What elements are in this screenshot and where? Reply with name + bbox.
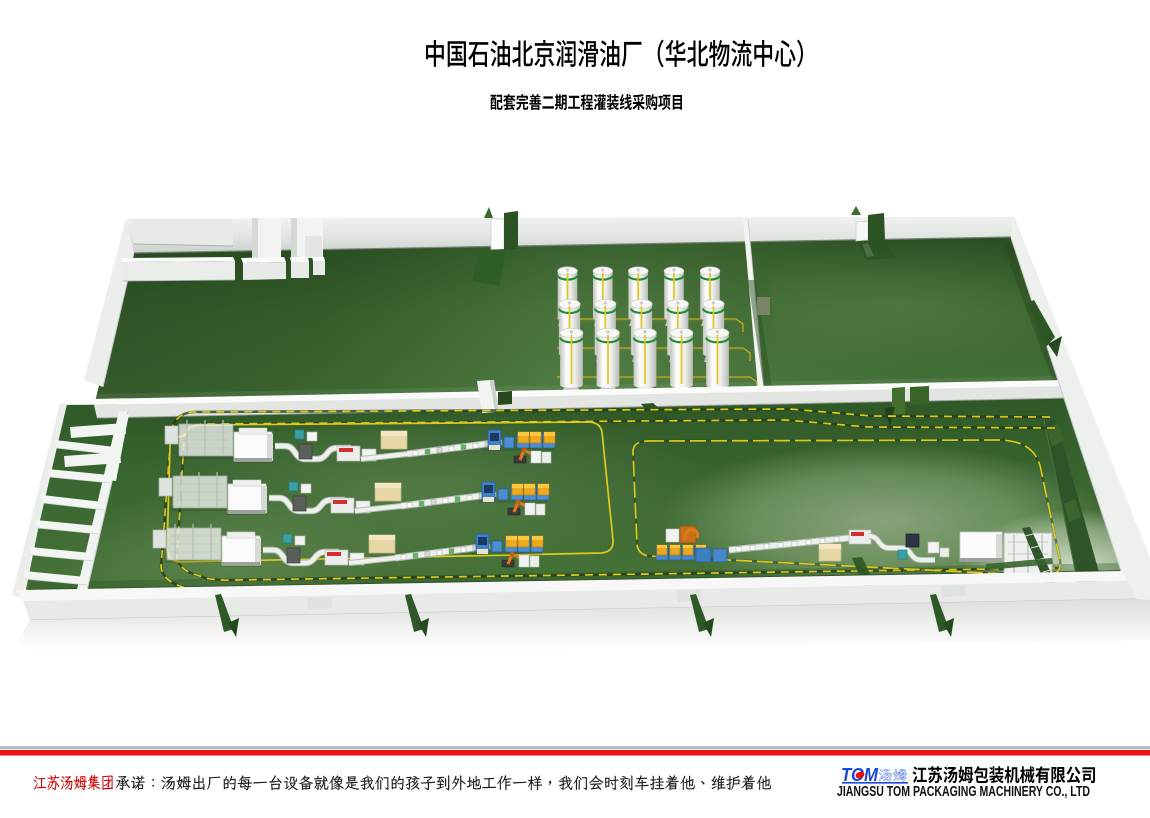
svg-text:JIANGSU TOM PACKAGING MACHINER: JIANGSU TOM PACKAGING MACHINERY CO., LTD (837, 784, 1090, 800)
